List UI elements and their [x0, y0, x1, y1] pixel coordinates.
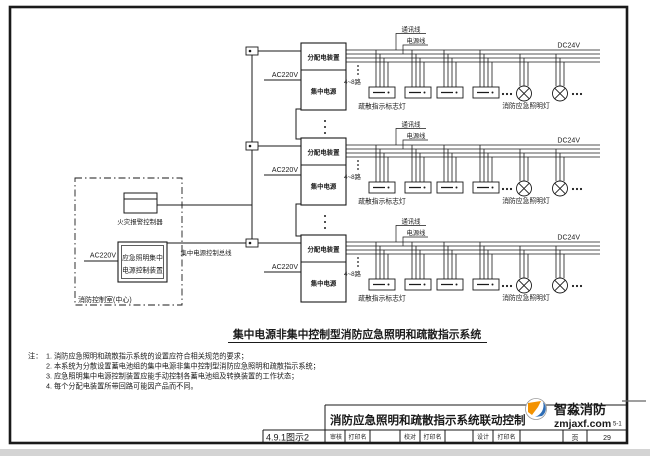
diagram-canvas: AC220V 分配电装置 集中电源 通讯线 电源线 DC24V 4~8路 — [0, 0, 650, 456]
proof-label: 校对 — [404, 433, 416, 441]
scanned-diagram-page: AC220V 分配电装置 集中电源 通讯线 电源线 DC24V 4~8路 — [0, 0, 650, 456]
fire-alarm-controller-box — [124, 193, 157, 213]
central-power-label: 集中电源 — [310, 87, 337, 96]
lamps-ellipsis-icon — [502, 93, 512, 95]
control-room-label: 消防控制室(中心) — [78, 295, 132, 304]
dc24v-label: DC24V — [557, 43, 580, 50]
comm-line-label: 通讯线 — [402, 25, 422, 34]
watermark-brand: 智淼消防 — [554, 402, 606, 417]
circuits-ellipsis-icon — [357, 65, 359, 75]
watermark-site: zmjaxf.com — [554, 418, 611, 430]
notes-prefix: 注： — [28, 352, 42, 361]
drawing-title: 消防应急照明和疏散指示系统联动控制 — [330, 413, 526, 427]
design-value: 打印名 — [497, 433, 515, 441]
note-line-2: 2. 本系统为分散设置蓄电池组的集中电源非集中控制型消防应急照明和疏散指示系统； — [46, 362, 320, 371]
ac220v-label: AC220V — [272, 72, 298, 79]
figure-number: 4.9.1图示2 — [266, 433, 309, 443]
proof-value: 打印名 — [423, 433, 441, 441]
control-device-label-line2: 电源控制装置 — [122, 266, 163, 275]
end-ellipsis-icon — [572, 93, 582, 95]
fire-alarm-controller-label: 火灾报警控制器 — [117, 217, 163, 226]
note-line-4: 4. 每个分配电装置所带回路可能因产品而不同。 — [46, 382, 198, 391]
sign-lamp-caption: 疏散指示标志灯 — [358, 102, 406, 111]
bus-junction-box — [246, 47, 258, 55]
review-value: 打印名 — [348, 433, 366, 441]
note-line-1: 1. 消防应急照明和疏散指示系统的设置应符合相关规范的要求； — [46, 352, 248, 361]
control-device-label-line1: 应急照明集中 — [122, 253, 163, 262]
central-power-control-device-box — [118, 242, 167, 282]
diagram-caption: 集中电源非集中控制型消防应急照明和疏散指示系统 — [232, 327, 482, 341]
emergency-lamp-caption: 消防应急照明灯 — [502, 101, 550, 110]
power-unit-box — [301, 43, 346, 110]
doc-number-fragment: 5-1 — [613, 422, 622, 428]
design-label: 设计 — [477, 433, 489, 441]
page-label: 页 — [572, 434, 579, 442]
distribution-box-label: 分配电装置 — [308, 53, 341, 62]
junction-dot-icon — [249, 50, 252, 53]
power-line-label: 电源线 — [407, 36, 427, 45]
page-number: 29 — [603, 435, 611, 442]
control-bus-label: 集中电源控制总线 — [180, 248, 232, 257]
room-ac220v-label: AC220V — [90, 253, 116, 260]
note-line-3: 3. 应急照明集中电源控制装置应能手动控制各蓄电池组及转换装置的工作状态； — [46, 372, 298, 381]
bottom-edge-strip — [0, 449, 650, 456]
review-label: 审核 — [330, 433, 342, 441]
circuits-label: 4~8路 — [344, 77, 362, 86]
